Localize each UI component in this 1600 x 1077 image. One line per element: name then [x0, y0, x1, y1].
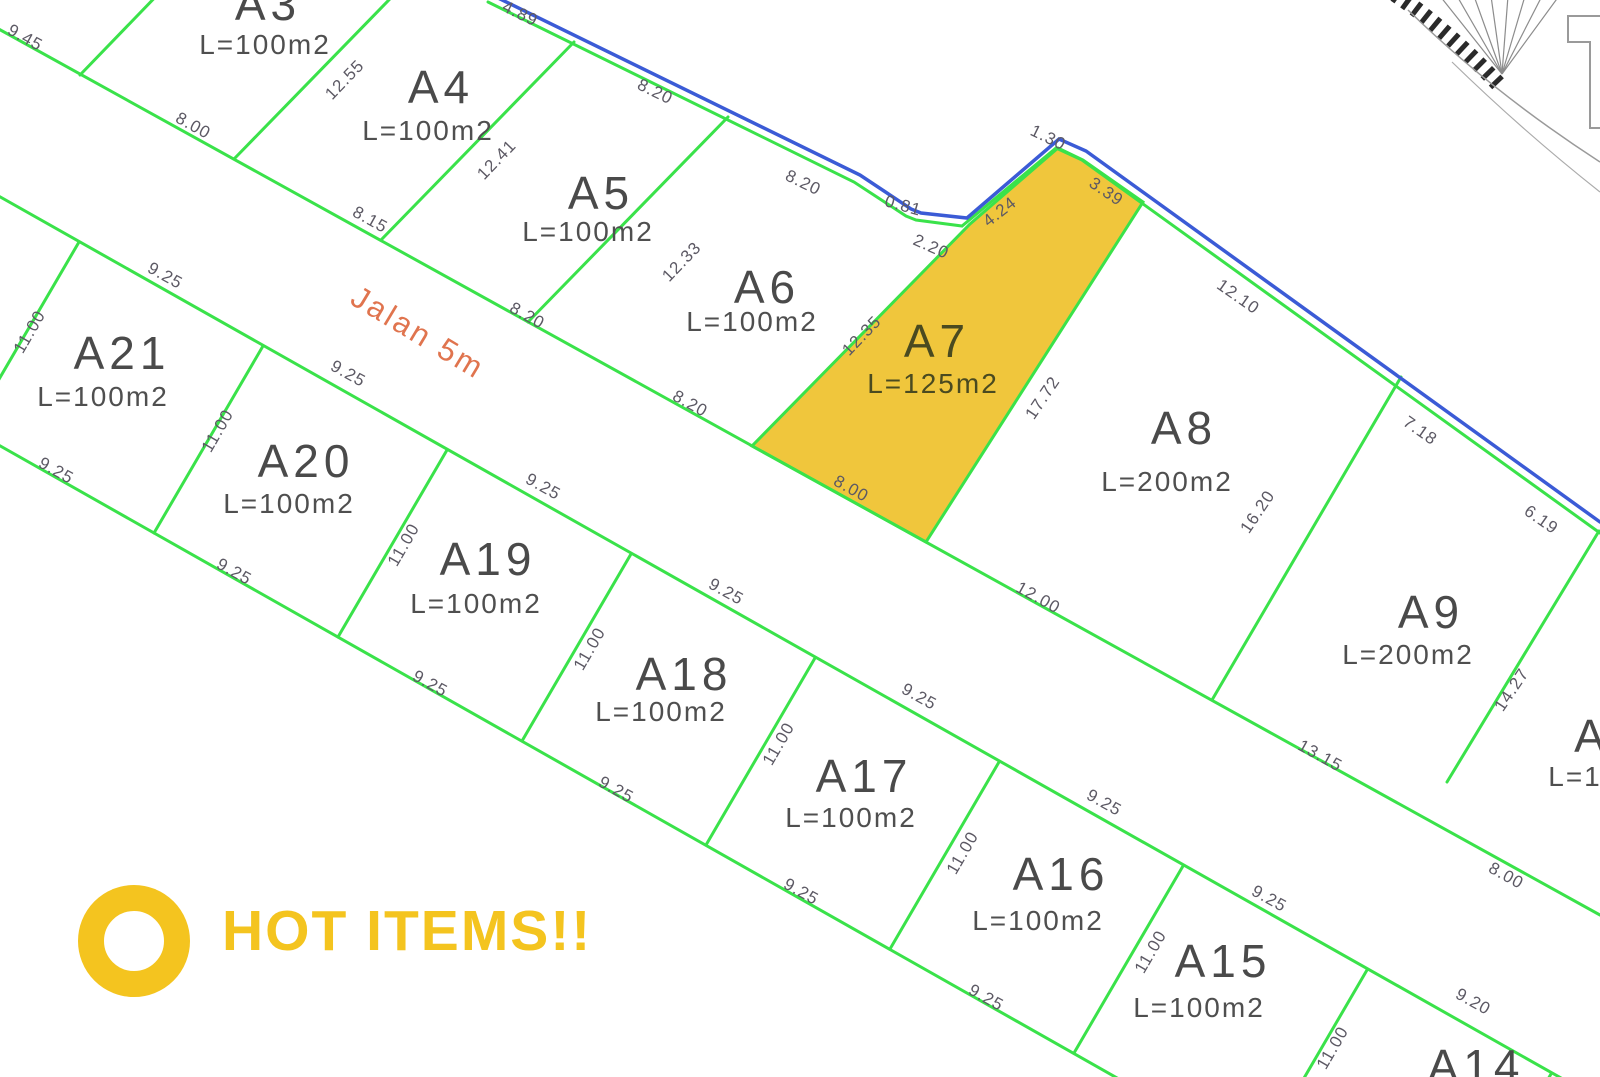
plot-area-a9: L=200m2 [1342, 639, 1474, 671]
dimension-label: 12.55 [321, 56, 368, 104]
dimension-label: 11.00 [384, 520, 424, 570]
dimension-label: 11.00 [198, 406, 238, 456]
plot-label-a20: A20 [258, 434, 355, 488]
dimension-label: 13.15 [1294, 736, 1345, 777]
dimension-label: 12.00 [1012, 578, 1063, 619]
dimension-label: 9.25 [780, 874, 822, 909]
plot-area-a5: L=100m2 [522, 216, 654, 248]
dimension-label: 8.20 [506, 298, 548, 333]
dimension-label: 11.00 [1313, 1023, 1353, 1073]
plot-label-a3: A3 [235, 0, 301, 31]
plot-area-a15: L=100m2 [1133, 992, 1265, 1024]
dimension-label: 8.20 [634, 75, 676, 109]
dimension-label: 17.72 [1021, 373, 1064, 424]
dimension-label: 9.45 [4, 20, 46, 55]
plot-label-a7: A7 [904, 314, 970, 368]
dimension-label: 9.25 [1248, 881, 1290, 916]
dimension-label: 9.25 [965, 980, 1007, 1015]
road-name-label: Jalan 5m [345, 279, 492, 387]
dimension-label: 9.25 [144, 258, 186, 293]
dimension-label: 3.39 [1085, 173, 1127, 210]
plot-area-a7: L=125m2 [867, 368, 999, 400]
plot-label-a5: A5 [568, 166, 634, 220]
plot-area-a3: L=100m2 [199, 29, 331, 61]
dimension-label: 0.81 [882, 191, 923, 220]
dimension-label: 11.00 [943, 828, 983, 878]
plot-area-a17: L=100m2 [785, 802, 917, 834]
plot-area-a8: L=200m2 [1101, 466, 1233, 498]
plot-label-a19: A19 [440, 532, 537, 586]
dimension-label: 16.20 [1236, 487, 1279, 538]
dimension-label: 2.20 [910, 230, 952, 263]
plot-area-a4: L=100m2 [362, 115, 494, 147]
plot-label-a14: A14 [1428, 1039, 1525, 1077]
plot-label-a: A [1574, 709, 1600, 763]
dimension-label: 12.10 [1213, 275, 1263, 319]
hot-items-ring-icon [78, 885, 190, 997]
plot-label-a21: A21 [74, 326, 171, 380]
dimension-label: 7.18 [1399, 412, 1441, 450]
dimension-label: 4.24 [979, 193, 1021, 232]
plot-label-a8: A8 [1151, 401, 1217, 455]
dimension-label: 11.00 [1131, 927, 1171, 977]
dimension-label: 9.25 [705, 574, 747, 609]
dimension-label: 12.33 [658, 238, 705, 286]
dimension-label: 14.27 [1490, 665, 1533, 716]
plot-label-a4: A4 [408, 60, 474, 114]
hot-items-label: HOT ITEMS!! [222, 898, 592, 964]
dimension-label: 9.25 [213, 554, 255, 589]
dimension-label: 6.19 [1520, 501, 1562, 539]
dimension-label: 4.89 [499, 0, 541, 31]
plot-label-a9: A9 [1398, 585, 1464, 639]
plot-label-a18: A18 [636, 647, 733, 701]
dimension-label: 8.00 [172, 108, 214, 143]
dimension-label: 9.25 [522, 469, 564, 504]
dimension-label: 9.25 [327, 356, 369, 391]
plot-area-a: L=1 [1548, 761, 1600, 793]
dimension-label: 11.00 [10, 307, 50, 357]
dimension-label: 8.00 [830, 471, 872, 506]
dimension-label: 9.20 [1452, 984, 1494, 1019]
dimension-label: 9.25 [1083, 785, 1125, 820]
dimension-label: 9.25 [35, 453, 77, 488]
plot-area-a16: L=100m2 [972, 905, 1104, 937]
dimension-label: 8.00 [1485, 858, 1527, 893]
dimension-label: 1.30 [1027, 121, 1069, 155]
dimension-label: 9.25 [409, 666, 451, 701]
dimension-label: 8.20 [669, 386, 711, 421]
dimension-label: 11.00 [570, 624, 610, 674]
hot-items-badge: HOT ITEMS!! [62, 870, 622, 1020]
dimension-label: 11.00 [759, 719, 799, 769]
dimension-label: 8.15 [349, 202, 391, 237]
dimension-label: 12.35 [838, 312, 885, 360]
plot-area-a19: L=100m2 [410, 588, 542, 620]
plot-area-a18: L=100m2 [595, 696, 727, 728]
plot-area-a20: L=100m2 [223, 488, 355, 520]
dimension-label: 9.25 [595, 772, 637, 807]
plot-label-a15: A15 [1175, 934, 1272, 988]
dimension-label: 9.25 [898, 679, 940, 714]
plot-area-a6: L=100m2 [686, 306, 818, 338]
dimension-label: 8.20 [782, 166, 824, 200]
plot-area-a21: L=100m2 [37, 381, 169, 413]
plot-label-a16: A16 [1013, 847, 1110, 901]
plot-label-a17: A17 [816, 749, 913, 803]
site-plan-map: A3L=100m2A4L=100m2A5L=100m2A6L=100m2A7L=… [0, 0, 1600, 1077]
